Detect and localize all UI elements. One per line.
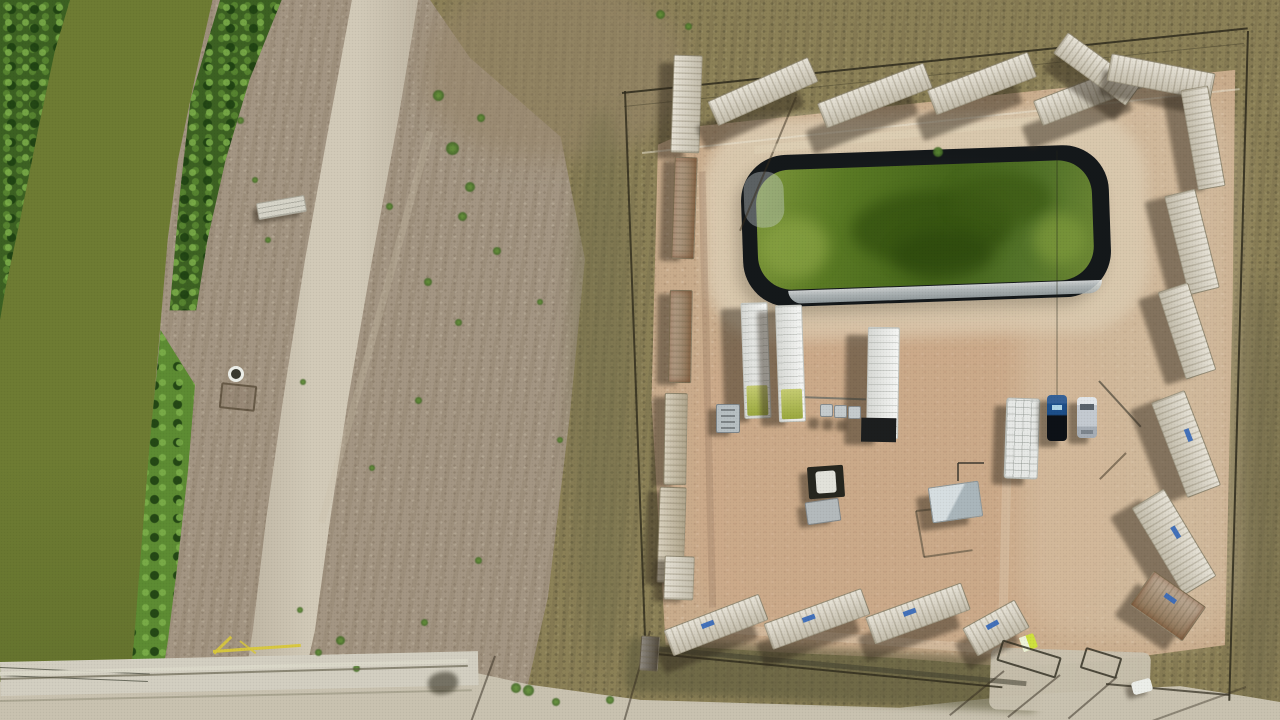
equipment-skid [716, 404, 740, 433]
rv-trailer [1004, 397, 1041, 479]
small-tank-2 [834, 405, 847, 418]
small-tank-2-shadow [822, 419, 833, 430]
container-top-a [670, 55, 702, 154]
container-left-3 [668, 290, 693, 383]
container-left-2 [671, 157, 698, 260]
culvert-ring [228, 366, 244, 382]
livestock-pen [219, 382, 258, 412]
equipment-trailer-3 [866, 327, 900, 440]
small-tank-1 [820, 404, 833, 417]
suv-car [1077, 397, 1097, 438]
small-tank-1-shadow [808, 418, 819, 429]
structures-and-vehicles [0, 0, 1280, 720]
small-tank-3 [848, 406, 861, 419]
equipment-unit [805, 498, 842, 526]
equipment-trailer-2 [775, 305, 806, 423]
pickup-truck [1047, 395, 1067, 441]
white-car-south [1131, 678, 1154, 696]
container-left-4 [663, 393, 688, 485]
metal-shed [928, 481, 984, 524]
small-tank-3-shadow [836, 420, 847, 431]
container-left-6 [663, 555, 695, 600]
culvert-shadow [426, 670, 459, 697]
entrance-gate-right [1080, 647, 1123, 679]
junction-box [807, 465, 845, 499]
aerial-photo-well-pad [0, 0, 1280, 720]
